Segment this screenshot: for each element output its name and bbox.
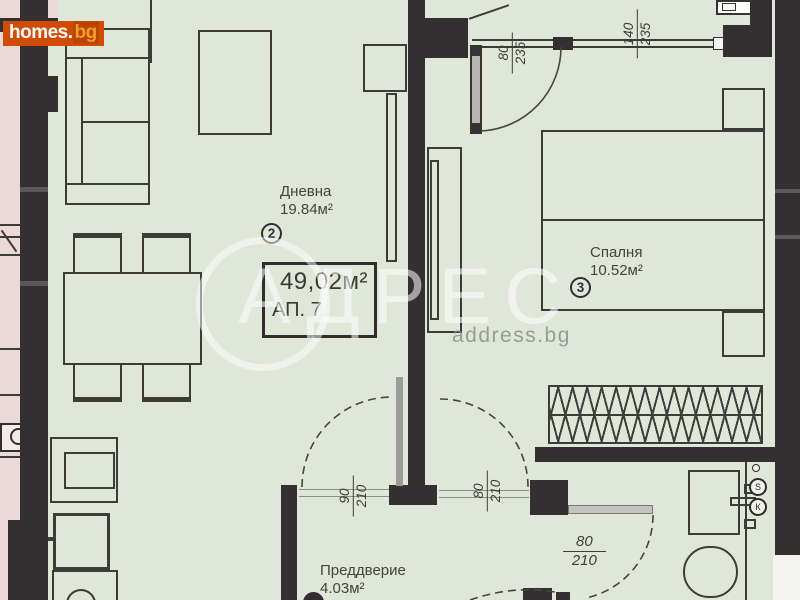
adjacent-apartment-strip [0, 0, 20, 600]
watermark-url: address.bg [452, 324, 571, 348]
center-partition-wall [408, 0, 425, 505]
wall-seam [775, 189, 800, 193]
top-right-corner-block [750, 0, 772, 25]
dim-bath-door: 80 210 [563, 533, 606, 570]
bath-door-leaf [568, 505, 653, 514]
dining-table [63, 272, 202, 365]
dim-height: 210 [572, 552, 597, 570]
entrance-door-block [523, 588, 552, 600]
ac-unit-vent [722, 3, 736, 11]
adjacent-line [0, 224, 20, 226]
dim-living-door: 90 210 [336, 475, 370, 516]
dim-bedroom-door: 80 235 [495, 32, 529, 73]
water-meter-cold-icon: К [749, 498, 767, 516]
dim-height: 210 [488, 480, 504, 503]
homes-bg-logo: homes.bg [3, 21, 104, 46]
kitchen-sink-basin [64, 452, 115, 489]
left-wall-bottom [8, 520, 48, 600]
center-wall-top-block [408, 18, 468, 58]
coffee-table [198, 30, 272, 135]
bedroom-label: Спалня 10.52м² [590, 244, 643, 281]
hall-area: 4.03м² [320, 580, 406, 598]
adjacent-line [0, 236, 20, 238]
dim-width: 140 [621, 10, 638, 59]
hall-bath-wall-stub [530, 480, 568, 515]
wall-seam [20, 187, 48, 192]
dim-width: 80 [496, 32, 513, 73]
adjacent-line [0, 348, 20, 350]
living-room-area: 19.84м² [280, 201, 333, 219]
logo-suffix: bg [73, 21, 99, 44]
bedroom-area: 10.52м² [590, 262, 643, 280]
apartment-total-area: 49,02м² [265, 265, 374, 296]
sofa-cushion-line [83, 121, 150, 123]
apartment-info-box: 49,02м² АП. 7 [262, 262, 377, 338]
bath-door-jamb [556, 592, 570, 600]
floor-plan: Ѕ К Дневна 19.84м² 2 Спалня 10.52м² 3 Пр… [0, 0, 800, 600]
dim-width: 80 [471, 470, 488, 511]
wall-seam [775, 235, 800, 239]
door-hinge-cap [470, 45, 482, 56]
door-end-cap [470, 123, 482, 134]
kitchen-appliance [53, 513, 110, 570]
sofa-cushion-line [65, 183, 150, 185]
sofa-armrest-line [81, 57, 83, 185]
window-end-post [713, 37, 724, 50]
window-mullion [553, 37, 573, 50]
bedroom-tv-screen [430, 160, 439, 320]
bedroom-number-badge: 3 [570, 277, 591, 298]
pipe-dot [752, 464, 760, 472]
bed-pillow-line [541, 219, 765, 221]
living-room-label: Дневна 19.84м² [280, 183, 333, 220]
hall-name: Преддверие [320, 562, 406, 580]
dim-height: 235 [638, 23, 654, 46]
adjacent-line [0, 456, 20, 458]
bedroom-name: Спалня [590, 244, 643, 262]
tv-screen [386, 93, 397, 262]
dim-width: 80 [563, 533, 606, 552]
center-wall-foot [389, 485, 437, 505]
top-right-wall-block [723, 25, 772, 57]
apartment-number: АП. 7 [265, 296, 374, 322]
dim-height: 210 [354, 485, 370, 508]
left-wall-pier [46, 76, 58, 112]
left-exterior-wall [20, 0, 48, 600]
nightstand-top [722, 88, 765, 130]
living-door-leaf [396, 377, 403, 486]
dim-hall-bedroom-door: 80 210 [470, 470, 504, 511]
dim-bedroom-window: 140 235 [620, 10, 654, 59]
adjacent-line [0, 394, 20, 396]
sofa [65, 28, 150, 205]
balcony-diagonal-line [469, 4, 509, 20]
tv-cabinet [363, 44, 407, 92]
living-door-arc [302, 397, 392, 487]
living-room-number-badge: 2 [261, 223, 282, 244]
sofa-side-line [150, 0, 152, 63]
wardrobe-rail-line [548, 414, 763, 416]
bath-shaft-line [745, 462, 747, 600]
toilet [683, 546, 738, 598]
hall-label: Преддверие 4.03м² [320, 562, 406, 599]
water-meter-icon: Ѕ [749, 478, 767, 496]
bedroom-bottom-wall [535, 447, 775, 462]
sofa-cushion-line [65, 57, 150, 59]
adjacent-line [0, 254, 20, 256]
bedroom-door-leaf [470, 45, 482, 134]
dim-width: 90 [337, 475, 354, 516]
wall-seam [20, 281, 48, 286]
dim-height: 235 [513, 42, 529, 65]
living-room-name: Дневна [280, 183, 333, 201]
nightstand-bottom [722, 311, 765, 357]
right-exterior-wall [775, 0, 800, 555]
right-wall-opening [773, 555, 800, 600]
hall-left-wall [281, 485, 297, 600]
logo-text: homes. [9, 22, 73, 43]
